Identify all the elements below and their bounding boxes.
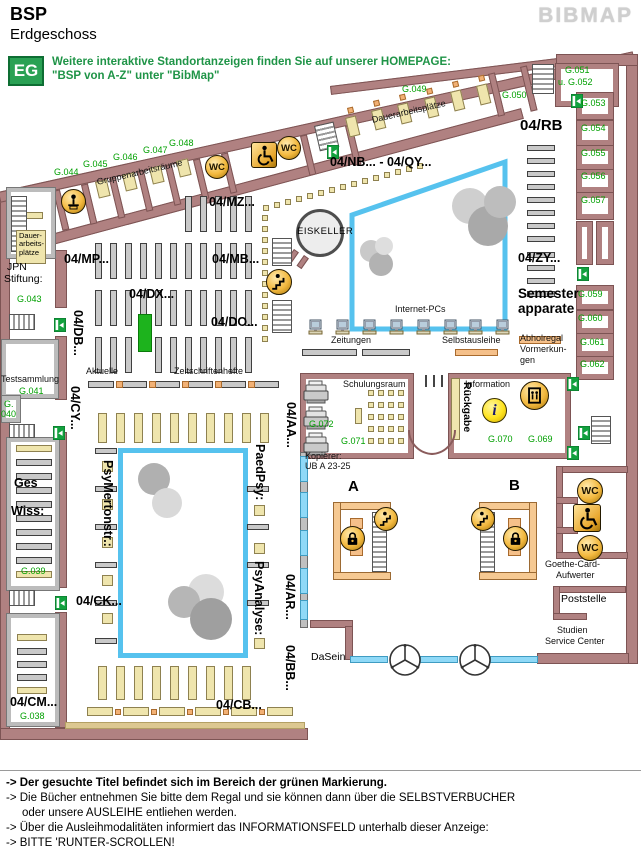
map-table — [87, 707, 113, 716]
rev-icon — [387, 642, 423, 678]
map-tan — [65, 722, 305, 729]
map-label: Information — [465, 380, 510, 390]
exit-icon — [567, 377, 579, 391]
map-label: Zeitschriftenhefte — [174, 367, 243, 377]
map-blueg — [420, 656, 458, 663]
pc-icon — [335, 319, 351, 336]
map-shelfH — [253, 381, 279, 388]
map-table — [262, 259, 268, 265]
map-osq — [248, 381, 255, 388]
bibmap-page: BSP Erdgeschoss BIBMAP EG Weitere intera… — [0, 0, 641, 856]
pc-icon — [389, 319, 405, 336]
steps-icon — [374, 507, 398, 531]
map-table — [263, 205, 269, 211]
map-wall — [556, 497, 578, 504]
map-table — [134, 666, 143, 700]
tree — [369, 252, 393, 276]
map-table — [188, 413, 197, 443]
map-label: Kopierer: UB A 23-25 — [305, 452, 351, 472]
map-table — [17, 634, 47, 641]
pc-icon — [443, 319, 459, 336]
map-table — [378, 402, 384, 408]
map-label: 04/MZ... — [209, 196, 255, 210]
exit-icon — [577, 267, 589, 281]
map-table — [368, 402, 374, 408]
map-label: G.071 — [341, 437, 366, 447]
map-label: 04/AA... — [283, 402, 297, 448]
map-shelf — [110, 290, 117, 326]
map-label: 04/DO... — [211, 316, 258, 330]
map-shelfH — [88, 381, 114, 388]
floor-plan-map: WCWCWCWCiG.044G.045G.046G.047G.048G.049G… — [0, 0, 641, 856]
map-label: G.055 — [581, 149, 606, 159]
map-table — [16, 445, 52, 452]
wheel-icon — [251, 142, 277, 168]
map-label: G.045 — [83, 160, 108, 170]
map-shelfH — [17, 661, 47, 668]
map-label: G.046 — [113, 153, 138, 163]
map-table — [262, 237, 268, 243]
map-table — [159, 707, 185, 716]
map-table — [262, 248, 268, 254]
map-table — [262, 292, 268, 298]
map-table — [242, 413, 251, 443]
map-label: G.061 — [580, 338, 605, 348]
map-label: Selbstausleihe — [442, 336, 501, 346]
gate-icon — [424, 374, 446, 388]
map-table — [388, 414, 394, 420]
map-shelfH — [527, 265, 555, 271]
map-table — [378, 438, 384, 444]
map-osq — [182, 381, 189, 388]
map-shelfH — [16, 529, 52, 536]
map-oframe — [479, 572, 537, 580]
map-table — [262, 303, 268, 309]
map-label: G.062 — [580, 360, 605, 370]
map-shelfH — [187, 381, 213, 388]
map-label: PsyMertonstr.: — [100, 460, 114, 547]
map-label: Poststelle — [561, 594, 607, 606]
map-shelfH — [527, 145, 555, 151]
map-label: Zeitungen — [331, 336, 371, 346]
map-wall — [626, 58, 638, 664]
map-table — [368, 390, 374, 396]
map-shelfH — [247, 524, 269, 530]
map-table — [170, 413, 179, 443]
map-label: G.043 — [17, 295, 42, 305]
map-shelf — [155, 337, 162, 373]
steps-icon — [471, 507, 495, 531]
map-shelfH — [17, 648, 47, 655]
map-table — [378, 426, 384, 432]
rev-icon — [457, 642, 493, 678]
map-shelf — [185, 290, 192, 326]
map-label: 04/MP... — [64, 253, 109, 267]
map-table — [254, 543, 265, 554]
map-osq — [187, 709, 193, 715]
map-shelfH — [220, 381, 246, 388]
instruction-line: -> BITTE 'RUNTER-SCROLLEN! — [6, 836, 635, 850]
lift-icon — [520, 381, 549, 410]
map-table — [254, 638, 265, 649]
exit-icon — [578, 426, 590, 440]
map-label: A — [348, 479, 359, 496]
map-shelfH — [95, 448, 117, 454]
map-table — [254, 505, 265, 516]
map-label: Stiftung: — [4, 274, 43, 286]
map-shelfH — [16, 557, 52, 564]
map-label: Testsammlung — [1, 375, 59, 385]
map-table — [398, 426, 404, 432]
map-table — [262, 226, 268, 232]
map-table — [262, 325, 268, 331]
map-label: 04/RB — [520, 118, 563, 135]
map-blueg — [300, 600, 308, 620]
lock-icon — [503, 526, 528, 551]
info-icon: i — [482, 398, 507, 423]
map-table — [98, 413, 107, 443]
map-shelfH — [527, 197, 555, 203]
map-table — [398, 414, 404, 420]
map-label: Dauer- arbeits- plätze — [19, 232, 44, 257]
map-label: G.051 — [565, 66, 590, 76]
map-table — [388, 390, 394, 396]
map-wall — [0, 728, 308, 740]
map-shelf — [155, 243, 162, 279]
map-wall — [556, 466, 628, 473]
wc-icon: WC — [577, 535, 603, 561]
map-shelfH — [16, 543, 52, 550]
map-label: Service Center — [545, 637, 605, 647]
map-table — [388, 402, 394, 408]
map-table — [398, 438, 404, 444]
map-shelfH — [527, 184, 555, 190]
map-label: 04/CB... — [216, 699, 262, 713]
map-shelf — [140, 243, 147, 279]
map-label: Goethe-Card- — [545, 560, 600, 570]
map-oframe — [333, 572, 391, 580]
map-table — [368, 414, 374, 420]
map-shelfH — [302, 349, 357, 356]
map-table — [388, 426, 394, 432]
map-table — [224, 666, 233, 700]
map-shelfH — [527, 210, 555, 216]
map-hatchh — [9, 314, 35, 330]
map-hatchh — [9, 424, 35, 438]
map-blueg — [490, 656, 538, 663]
map-table — [170, 666, 179, 700]
map-label: PsyAnalyse: — [251, 561, 265, 635]
map-shelfH — [95, 638, 117, 644]
tree — [190, 598, 232, 640]
map-wall — [537, 653, 629, 664]
map-label: Vormerkun- — [520, 345, 567, 355]
map-table — [262, 314, 268, 320]
tree — [375, 237, 393, 255]
printer-icon — [303, 380, 330, 404]
map-label: u. G.052 — [558, 78, 593, 88]
map-label: G.041 — [19, 387, 44, 397]
map-shelf — [125, 243, 132, 279]
map-table — [318, 190, 324, 196]
map-table — [398, 390, 404, 396]
map-shelf — [200, 243, 207, 279]
map-label: Aktuelle — [86, 367, 118, 377]
map-osq — [115, 709, 121, 715]
map-table — [340, 184, 346, 190]
map-shelfH — [121, 381, 147, 388]
map-label: G.039 — [21, 567, 46, 577]
map-label: 04/ZY... — [518, 252, 560, 266]
tree — [152, 488, 182, 518]
map-label: G.044 — [54, 168, 79, 178]
map-osq — [426, 88, 433, 95]
map-table — [285, 199, 291, 205]
map-shelfH — [95, 562, 117, 568]
map-table — [116, 413, 125, 443]
map-table — [242, 666, 251, 700]
map-table — [373, 175, 379, 181]
map-label: G.038 — [20, 712, 45, 722]
map-label: G.060 — [578, 314, 603, 324]
map-table — [307, 193, 313, 199]
pc-icon — [468, 319, 484, 336]
map-osq — [215, 381, 222, 388]
instruction-line: -> Die Bücher entnehmen Sie bitte dem Re… — [6, 791, 635, 805]
pc-icon — [308, 319, 324, 336]
map-label: 04/DB... — [70, 310, 84, 356]
pc-icon — [416, 319, 432, 336]
map-label: G.056 — [581, 172, 606, 182]
map-label: G.057 — [581, 196, 606, 206]
map-shelf — [200, 196, 207, 232]
map-table — [102, 613, 113, 624]
map-label: gen — [520, 356, 535, 366]
map-hatch — [272, 238, 292, 266]
map-shelfH — [154, 381, 180, 388]
instructions-panel: -> Der gesuchte Titel befindet sich im B… — [0, 770, 641, 856]
map-osq — [452, 81, 459, 88]
map-table — [351, 181, 357, 187]
map-blueg — [300, 530, 308, 556]
map-shelfH — [527, 236, 555, 242]
map-label: DaSein — [311, 652, 345, 664]
map-table — [378, 414, 384, 420]
map-room — [577, 222, 592, 264]
wheel-icon — [573, 504, 601, 532]
map-osq — [149, 381, 156, 388]
map-label: G.053 — [581, 99, 606, 109]
map-blueg — [350, 656, 388, 663]
map-label: Abholregal — [520, 334, 563, 344]
map-label: PaedPsy: — [252, 444, 266, 500]
green-marking — [138, 314, 152, 352]
map-label: 04/CK... — [76, 595, 122, 609]
map-label: Wiss: — [11, 505, 44, 519]
map-wall — [553, 613, 587, 620]
map-shelfH — [527, 171, 555, 177]
map-shelf — [245, 337, 252, 373]
map-wall — [556, 466, 563, 556]
map-label: 04/MB... — [212, 253, 259, 267]
lock-icon — [340, 526, 365, 551]
map-osq — [478, 75, 485, 82]
map-label: G.069 — [528, 435, 553, 445]
map-shelf — [125, 337, 132, 373]
map-label: G.059 — [578, 290, 603, 300]
instruction-line: oder unsere AUSLEIHE entliehen werden. — [6, 806, 635, 820]
wc-icon: WC — [577, 478, 603, 504]
map-label: 04/AR... — [282, 574, 296, 620]
map-shelf — [110, 243, 117, 279]
map-table — [116, 666, 125, 700]
map-hatchh — [9, 590, 35, 606]
map-shelfH — [17, 674, 47, 681]
map-table — [262, 336, 268, 342]
map-label: 04/CM... — [10, 696, 57, 710]
map-label: Ges — [14, 477, 38, 491]
instruction-line: -> Über die Ausleihmodalitäten informier… — [6, 821, 635, 835]
map-obar — [455, 349, 498, 356]
exit-icon — [53, 426, 65, 440]
map-label: G.047 — [143, 146, 168, 156]
map-table — [398, 402, 404, 408]
map-table — [17, 687, 47, 694]
map-table — [98, 666, 107, 700]
map-table — [362, 178, 368, 184]
map-label: G.050 — [502, 91, 527, 101]
map-hatch — [272, 300, 292, 333]
map-table — [355, 408, 362, 424]
map-osq — [151, 709, 157, 715]
map-wall — [345, 626, 353, 660]
tree — [484, 186, 516, 218]
map-table — [274, 202, 280, 208]
map-hatch — [591, 416, 611, 444]
map-table — [152, 666, 161, 700]
map-label: G.049 — [402, 85, 427, 95]
pc-icon — [495, 319, 511, 336]
map-label: Internet-PCs — [395, 305, 446, 315]
exit-icon — [55, 596, 67, 610]
map-table — [260, 413, 269, 443]
map-blueg — [300, 568, 308, 594]
map-label: 04/NB... - 04/QY... — [330, 156, 431, 170]
map-shelfH — [527, 158, 555, 164]
map-wall — [553, 586, 626, 593]
map-shelfH — [362, 349, 410, 356]
map-osq — [116, 381, 123, 388]
map-label: JPN — [7, 262, 27, 274]
map-table — [368, 438, 374, 444]
map-table — [102, 575, 113, 586]
map-label: 040 — [1, 410, 16, 420]
map-table — [384, 172, 390, 178]
map-table — [206, 666, 215, 700]
map-label: Studien — [557, 626, 588, 636]
map-osq — [373, 100, 380, 107]
map-room — [597, 222, 613, 264]
map-shelf — [170, 243, 177, 279]
map-hatch — [532, 64, 554, 94]
map-table — [378, 390, 384, 396]
map-table — [224, 413, 233, 443]
map-shelfH — [16, 459, 52, 466]
map-label: B — [509, 478, 520, 495]
map-table — [134, 413, 143, 443]
map-oframe — [529, 502, 537, 580]
map-label: 04/CY... — [67, 386, 81, 430]
map-label: 04/DX... — [129, 288, 174, 302]
map-table — [395, 169, 401, 175]
map-table — [368, 426, 374, 432]
map-label: G.048 — [169, 139, 194, 149]
map-table — [267, 707, 293, 716]
map-label: 04/BB... — [282, 645, 296, 691]
map-table — [152, 413, 161, 443]
map-shelf — [200, 290, 207, 326]
map-label: Schulungsraum — [343, 380, 406, 390]
map-shelfH — [527, 278, 555, 284]
map-wall — [297, 255, 309, 269]
map-table — [329, 187, 335, 193]
map-shelf — [95, 290, 102, 326]
map-table — [388, 438, 394, 444]
doors-icon — [406, 429, 458, 456]
map-label: Semester apparate — [518, 287, 579, 317]
pc-icon — [362, 319, 378, 336]
person-icon — [61, 189, 86, 214]
map-shelf — [185, 196, 192, 232]
map-label: G.070 — [488, 435, 513, 445]
map-table — [188, 666, 197, 700]
exit-icon — [567, 446, 579, 460]
map-label: G.072 — [309, 420, 334, 430]
wc-icon: WC — [277, 136, 301, 160]
map-label: G.054 — [581, 124, 606, 134]
map-blueg — [300, 492, 308, 518]
map-table — [123, 707, 149, 716]
map-shelf — [185, 243, 192, 279]
map-shelfH — [527, 223, 555, 229]
map-table — [262, 215, 268, 221]
map-label: Aufwerter — [556, 571, 595, 581]
instruction-line: -> Der gesuchte Titel befindet sich im B… — [6, 776, 635, 790]
exit-icon — [54, 318, 66, 332]
wc-icon: WC — [205, 155, 229, 179]
map-table — [296, 196, 302, 202]
map-table — [206, 413, 215, 443]
steps-icon — [266, 269, 292, 295]
map-label: EISKELLER — [297, 227, 353, 237]
